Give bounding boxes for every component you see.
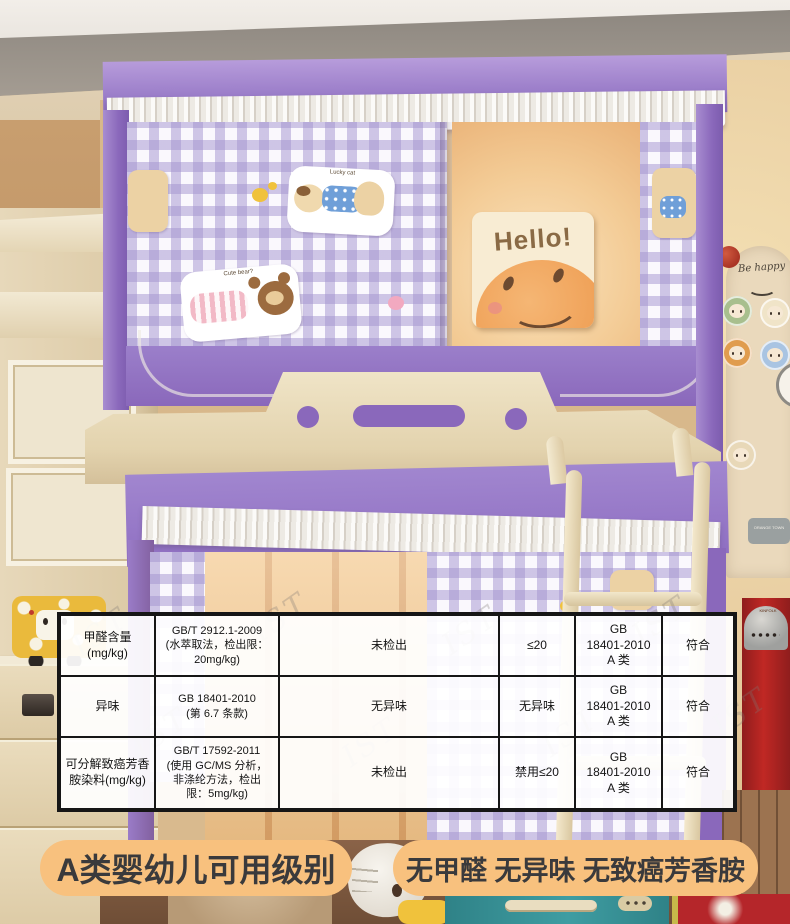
cell-method-azo-dyes: GB/T 17592-2011 (使用 GC/MS 分析， 非涤纶方法，检出 限… <box>155 737 279 809</box>
cell-conclusion-formaldehyde: 符合 <box>662 615 734 676</box>
cell-standard-azo-dyes: GB 18401-2010 A 类 <box>575 737 662 809</box>
be-happy-smiley-icon <box>748 282 776 296</box>
kitchen-brand-label: KINFOLK <box>748 608 788 613</box>
character-sticker-bow-girl <box>760 298 790 328</box>
smiley-mouth-icon <box>508 285 580 328</box>
banner-no-harmful-substances: 无甲醛 无异味 无致癌芳香胺 <box>393 840 758 896</box>
paw-print-icon <box>388 296 404 310</box>
hello-sign: Hello! <box>472 212 594 328</box>
cell-result-formaldehyde: 未检出 <box>279 615 499 676</box>
cell-conclusion-azo-dyes: 符合 <box>662 737 734 809</box>
sticker-face-icon <box>733 448 749 462</box>
character-sticker-rabbit <box>722 338 752 368</box>
sticker-face-icon <box>767 348 783 362</box>
smiley-eye-icon <box>501 275 516 292</box>
character-sticker-fox <box>726 440 756 470</box>
partial-bear-sticker <box>128 170 168 232</box>
bear-shirt-icon <box>189 289 249 324</box>
paw-print-icon <box>252 188 268 202</box>
cell-standard-odor: GB 18401-2010 A 类 <box>575 676 662 737</box>
smiley-face-icon <box>476 260 594 328</box>
cell-method-formaldehyde: GB/T 2912.1-2009 (水萃取法，检出限： 20mg/kg) <box>155 615 279 676</box>
cell-limit-formaldehyde: ≤20 <box>499 615 575 676</box>
banner-no-harmful-label: 无甲醛 无异味 无致癌芳香胺 <box>406 849 745 888</box>
kitty-body <box>398 900 450 924</box>
drawer-latch <box>22 694 54 716</box>
cell-standard-formaldehyde: GB 18401-2010 A 类 <box>575 615 662 676</box>
partial-cat-sticker <box>652 168 696 238</box>
cat-body-icon <box>353 181 385 217</box>
suitcase-handle <box>505 900 597 912</box>
orange-town-plaque: ORANGE TOWN <box>748 518 790 544</box>
kitchen-knobs-icon <box>750 632 780 638</box>
cell-limit-odor: 无异味 <box>499 676 575 737</box>
smiley-eye-icon <box>551 267 566 284</box>
cell-conclusion-odor: 符合 <box>662 676 734 737</box>
upper-curtain-gingham-right <box>638 122 698 372</box>
kitty-whiskers-icon <box>352 862 378 892</box>
banner-infant-grade-label: A类婴幼儿可用级别 <box>56 845 335 891</box>
cell-result-odor: 无异味 <box>279 676 499 737</box>
suitcase-lock <box>618 896 652 911</box>
hello-sign-text: Hello! <box>472 220 594 259</box>
comic-artwork <box>672 894 790 924</box>
cat-head-icon <box>293 184 324 214</box>
guardrail-hole <box>505 408 527 430</box>
cell-item-azo-dyes: 可分解致癌芳香 胺染料(mg/kg) <box>60 737 155 809</box>
character-sticker-girl <box>722 296 752 326</box>
cell-item-formaldehyde: 甲醛含量 (mg/kg) <box>60 615 155 676</box>
kitchen-hood-icon: KINFOLK <box>744 606 788 650</box>
guardrail-hole <box>297 406 319 428</box>
robot-nose-icon <box>29 610 34 615</box>
sticker-face-icon <box>767 306 783 320</box>
bear-head-icon <box>256 279 295 316</box>
cell-result-azo-dyes: 未检出 <box>279 737 499 809</box>
bear-ear-icon <box>248 276 261 289</box>
lucky-cat-label: Lucky cat <box>289 167 395 179</box>
cat-shirt-icon <box>660 196 686 218</box>
guardrail-handle-slot <box>353 405 465 427</box>
banner-infant-grade: A类婴幼儿可用级别 <box>40 840 352 896</box>
product-detail-image: Be happy ORANGE TOWN KINFOLK Lucky cat <box>0 0 790 924</box>
toy-kitchen: KINFOLK <box>742 598 790 803</box>
ladder-rung <box>564 592 702 606</box>
smiley-blush-icon <box>488 302 502 314</box>
sticker-face-icon <box>729 346 745 360</box>
cell-item-odor: 异味 <box>60 676 155 737</box>
cell-method-odor: GB 18401-2010 (第 6.7 条款) <box>155 676 279 737</box>
sticker-face-icon <box>729 304 745 318</box>
test-report-table: 甲醛含量 (mg/kg) GB/T 2912.1-2009 (水萃取法，检出限：… <box>57 612 737 812</box>
lucky-cat-sticker: Lucky cat <box>286 165 395 236</box>
cell-limit-azo-dyes: 禁用≤20 <box>499 737 575 809</box>
paw-print-icon <box>268 182 277 190</box>
